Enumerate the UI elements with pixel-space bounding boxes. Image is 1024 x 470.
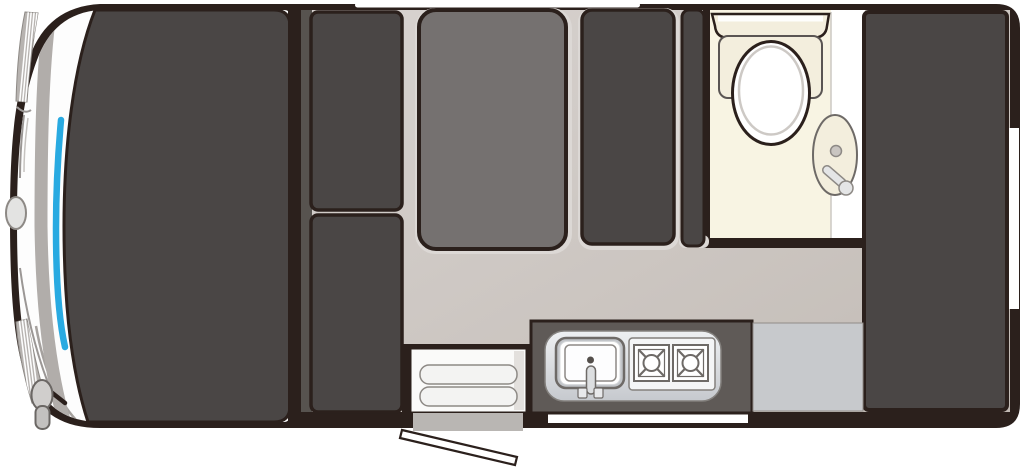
toilet-tank-lid xyxy=(718,16,823,22)
entry xyxy=(400,348,527,465)
washbasin-icon xyxy=(813,115,857,195)
burner-right xyxy=(673,345,708,381)
partition-cabinet xyxy=(682,10,704,246)
kitchen-sink-icon xyxy=(556,338,624,398)
fridge-cabinet xyxy=(753,323,863,411)
faucet-foot-right xyxy=(594,388,603,398)
dinette-seat xyxy=(582,10,674,244)
door-window xyxy=(548,415,748,424)
toilet-bowl xyxy=(733,42,810,145)
mirror-base xyxy=(36,406,50,429)
cab-interior xyxy=(64,10,290,422)
cab-divider-wall xyxy=(288,6,302,426)
rear-side-window xyxy=(1009,128,1019,309)
burner-left xyxy=(634,345,669,381)
side-seat-lower xyxy=(311,215,402,412)
sink-drain xyxy=(587,357,594,364)
side-seat-upper xyxy=(311,12,402,210)
step-tread-lower xyxy=(420,387,517,406)
bathroom-bottom-wall xyxy=(703,238,866,248)
rear-bed xyxy=(864,12,1007,410)
front-badge-icon xyxy=(6,197,26,229)
entry-door-open xyxy=(400,430,517,465)
exterior-step xyxy=(413,413,523,431)
washbasin-knob xyxy=(839,181,853,195)
campervan-floorplan xyxy=(0,0,1024,470)
bed-cushion xyxy=(419,10,566,249)
step-tread-upper xyxy=(420,365,517,384)
top-window xyxy=(355,3,640,8)
washbasin-drain xyxy=(831,146,842,157)
stove-two-burner-icon xyxy=(629,338,715,390)
faucet-foot-left xyxy=(578,388,587,398)
driver-cab xyxy=(16,10,290,422)
